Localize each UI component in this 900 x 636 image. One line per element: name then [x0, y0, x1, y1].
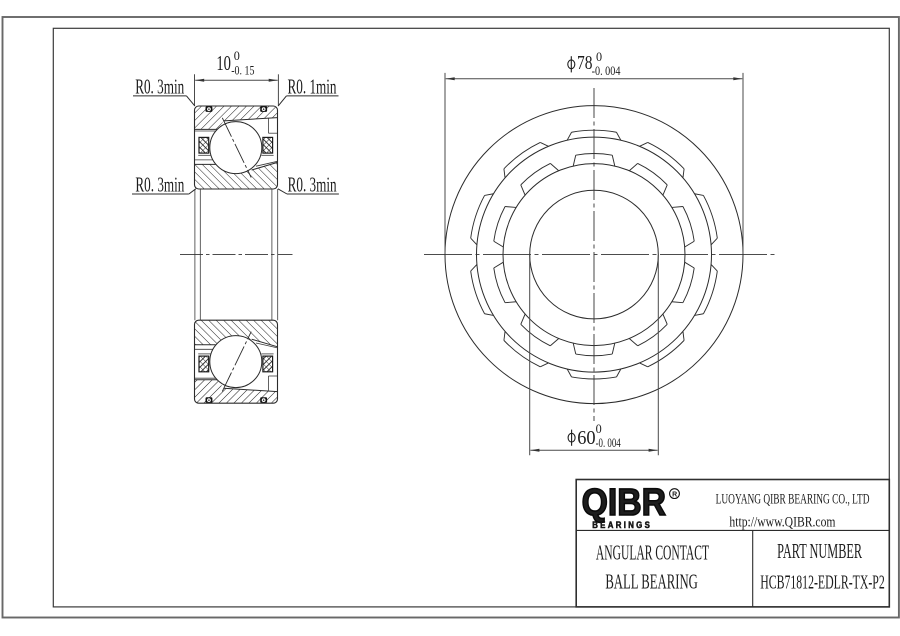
svg-text:-0. 15: -0. 15 — [231, 63, 254, 78]
svg-text:0: 0 — [596, 422, 602, 436]
svg-text:PART NUMBER: PART NUMBER — [777, 539, 862, 562]
svg-text:78: 78 — [577, 51, 593, 73]
svg-text:QIBR: QIBR — [582, 480, 666, 523]
svg-text:-0. 004: -0. 004 — [596, 437, 621, 451]
svg-text:0: 0 — [596, 50, 602, 64]
svg-text:BALL BEARING: BALL BEARING — [605, 571, 698, 594]
svg-text:10: 10 — [216, 52, 231, 75]
svg-text:BEARINGS: BEARINGS — [592, 519, 652, 530]
svg-text:ANGULAR CONTACT: ANGULAR CONTACT — [596, 541, 710, 565]
svg-text:R0. 3min: R0. 3min — [288, 172, 337, 196]
svg-text:http://www.QIBR.com: http://www.QIBR.com — [729, 513, 836, 530]
svg-text:R: R — [672, 492, 677, 499]
svg-text:60: 60 — [577, 427, 595, 449]
svg-text:-0. 004: -0. 004 — [592, 64, 621, 78]
svg-text:LUOYANG QIBR BEARING CO., LTD: LUOYANG QIBR BEARING CO., LTD — [716, 490, 870, 507]
svg-text:R0. 3min: R0. 3min — [135, 74, 184, 98]
svg-text:R0. 3min: R0. 3min — [135, 172, 184, 196]
svg-text:0: 0 — [234, 48, 240, 62]
svg-text:HCB71812-EDLR-TX-P2: HCB71812-EDLR-TX-P2 — [760, 570, 885, 593]
svg-text:R0. 1min: R0. 1min — [288, 74, 337, 98]
